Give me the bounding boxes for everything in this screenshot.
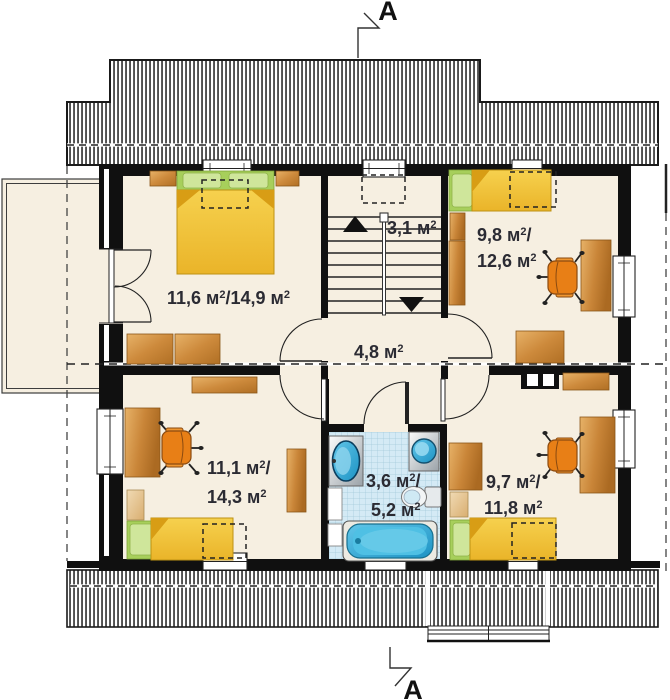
svg-text:11,6 м2/14,9 м2: 11,6 м2/14,9 м2	[167, 288, 290, 308]
svg-text:4,8 м2: 4,8 м2	[354, 342, 403, 362]
svg-text:12,6 м2: 12,6 м2	[477, 251, 536, 271]
svg-text:11,8 м2: 11,8 м2	[484, 498, 542, 518]
svg-text:5,2 м2: 5,2 м2	[371, 500, 420, 520]
svg-text:3,1 м2: 3,1 м2	[387, 218, 436, 238]
svg-text:A: A	[403, 675, 423, 700]
svg-text:A: A	[378, 0, 398, 26]
svg-text:14,3 м2: 14,3 м2	[207, 487, 266, 507]
